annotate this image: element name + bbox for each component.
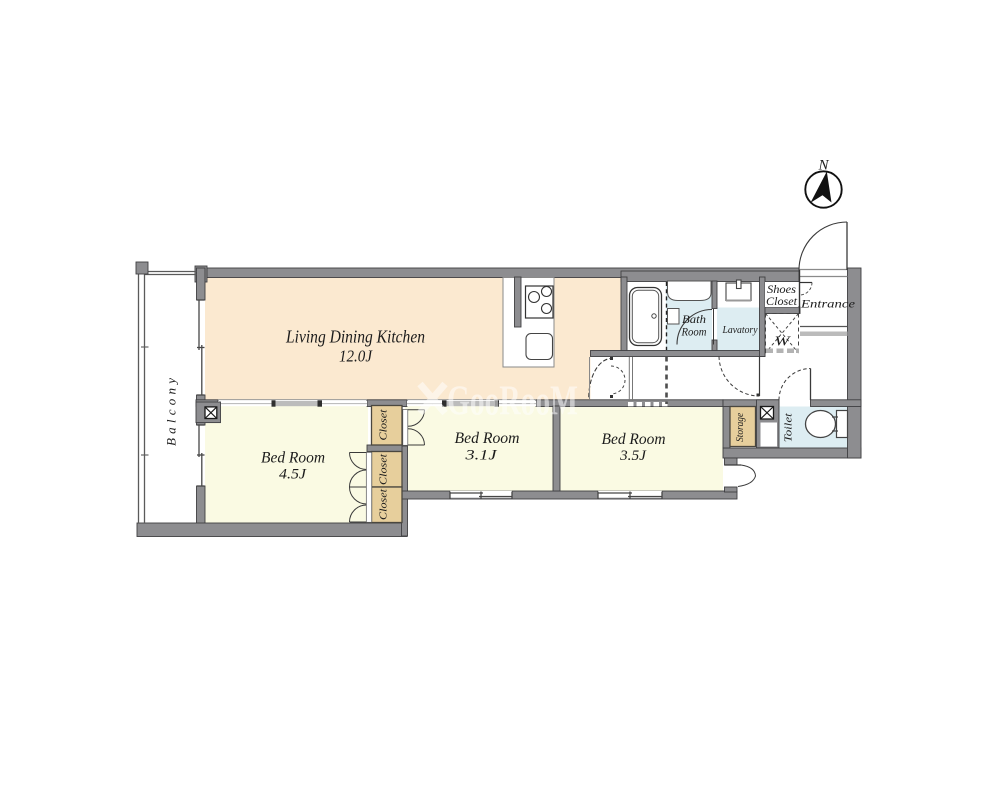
svg-text:3.5J: 3.5J (619, 448, 647, 464)
svg-text:GooRooM: GooRooM (447, 379, 578, 425)
svg-text:Bed Room: Bed Room (602, 431, 666, 448)
svg-text:Closet: Closet (379, 488, 390, 520)
svg-text:Closet: Closet (379, 408, 390, 440)
svg-text:Closet: Closet (766, 294, 798, 308)
svg-text:Bed Room: Bed Room (261, 450, 325, 467)
svg-text:Living Dining Kitchen: Living Dining Kitchen (285, 327, 425, 347)
svg-text:Storage: Storage (735, 412, 746, 442)
svg-text:Closet: Closet (379, 453, 390, 485)
svg-text:W: W (775, 335, 792, 350)
svg-text:Room: Room (681, 325, 707, 339)
svg-text:12.0J: 12.0J (339, 347, 373, 366)
svg-text:N: N (817, 158, 829, 174)
svg-text:Lavatory: Lavatory (722, 325, 758, 336)
svg-text:Entrance: Entrance (800, 297, 856, 311)
svg-text:Toilet: Toilet (783, 412, 795, 442)
svg-text:Bed Room: Bed Room (455, 430, 520, 447)
svg-text:4.5J: 4.5J (279, 467, 307, 483)
svg-text:3.1J: 3.1J (464, 448, 498, 464)
